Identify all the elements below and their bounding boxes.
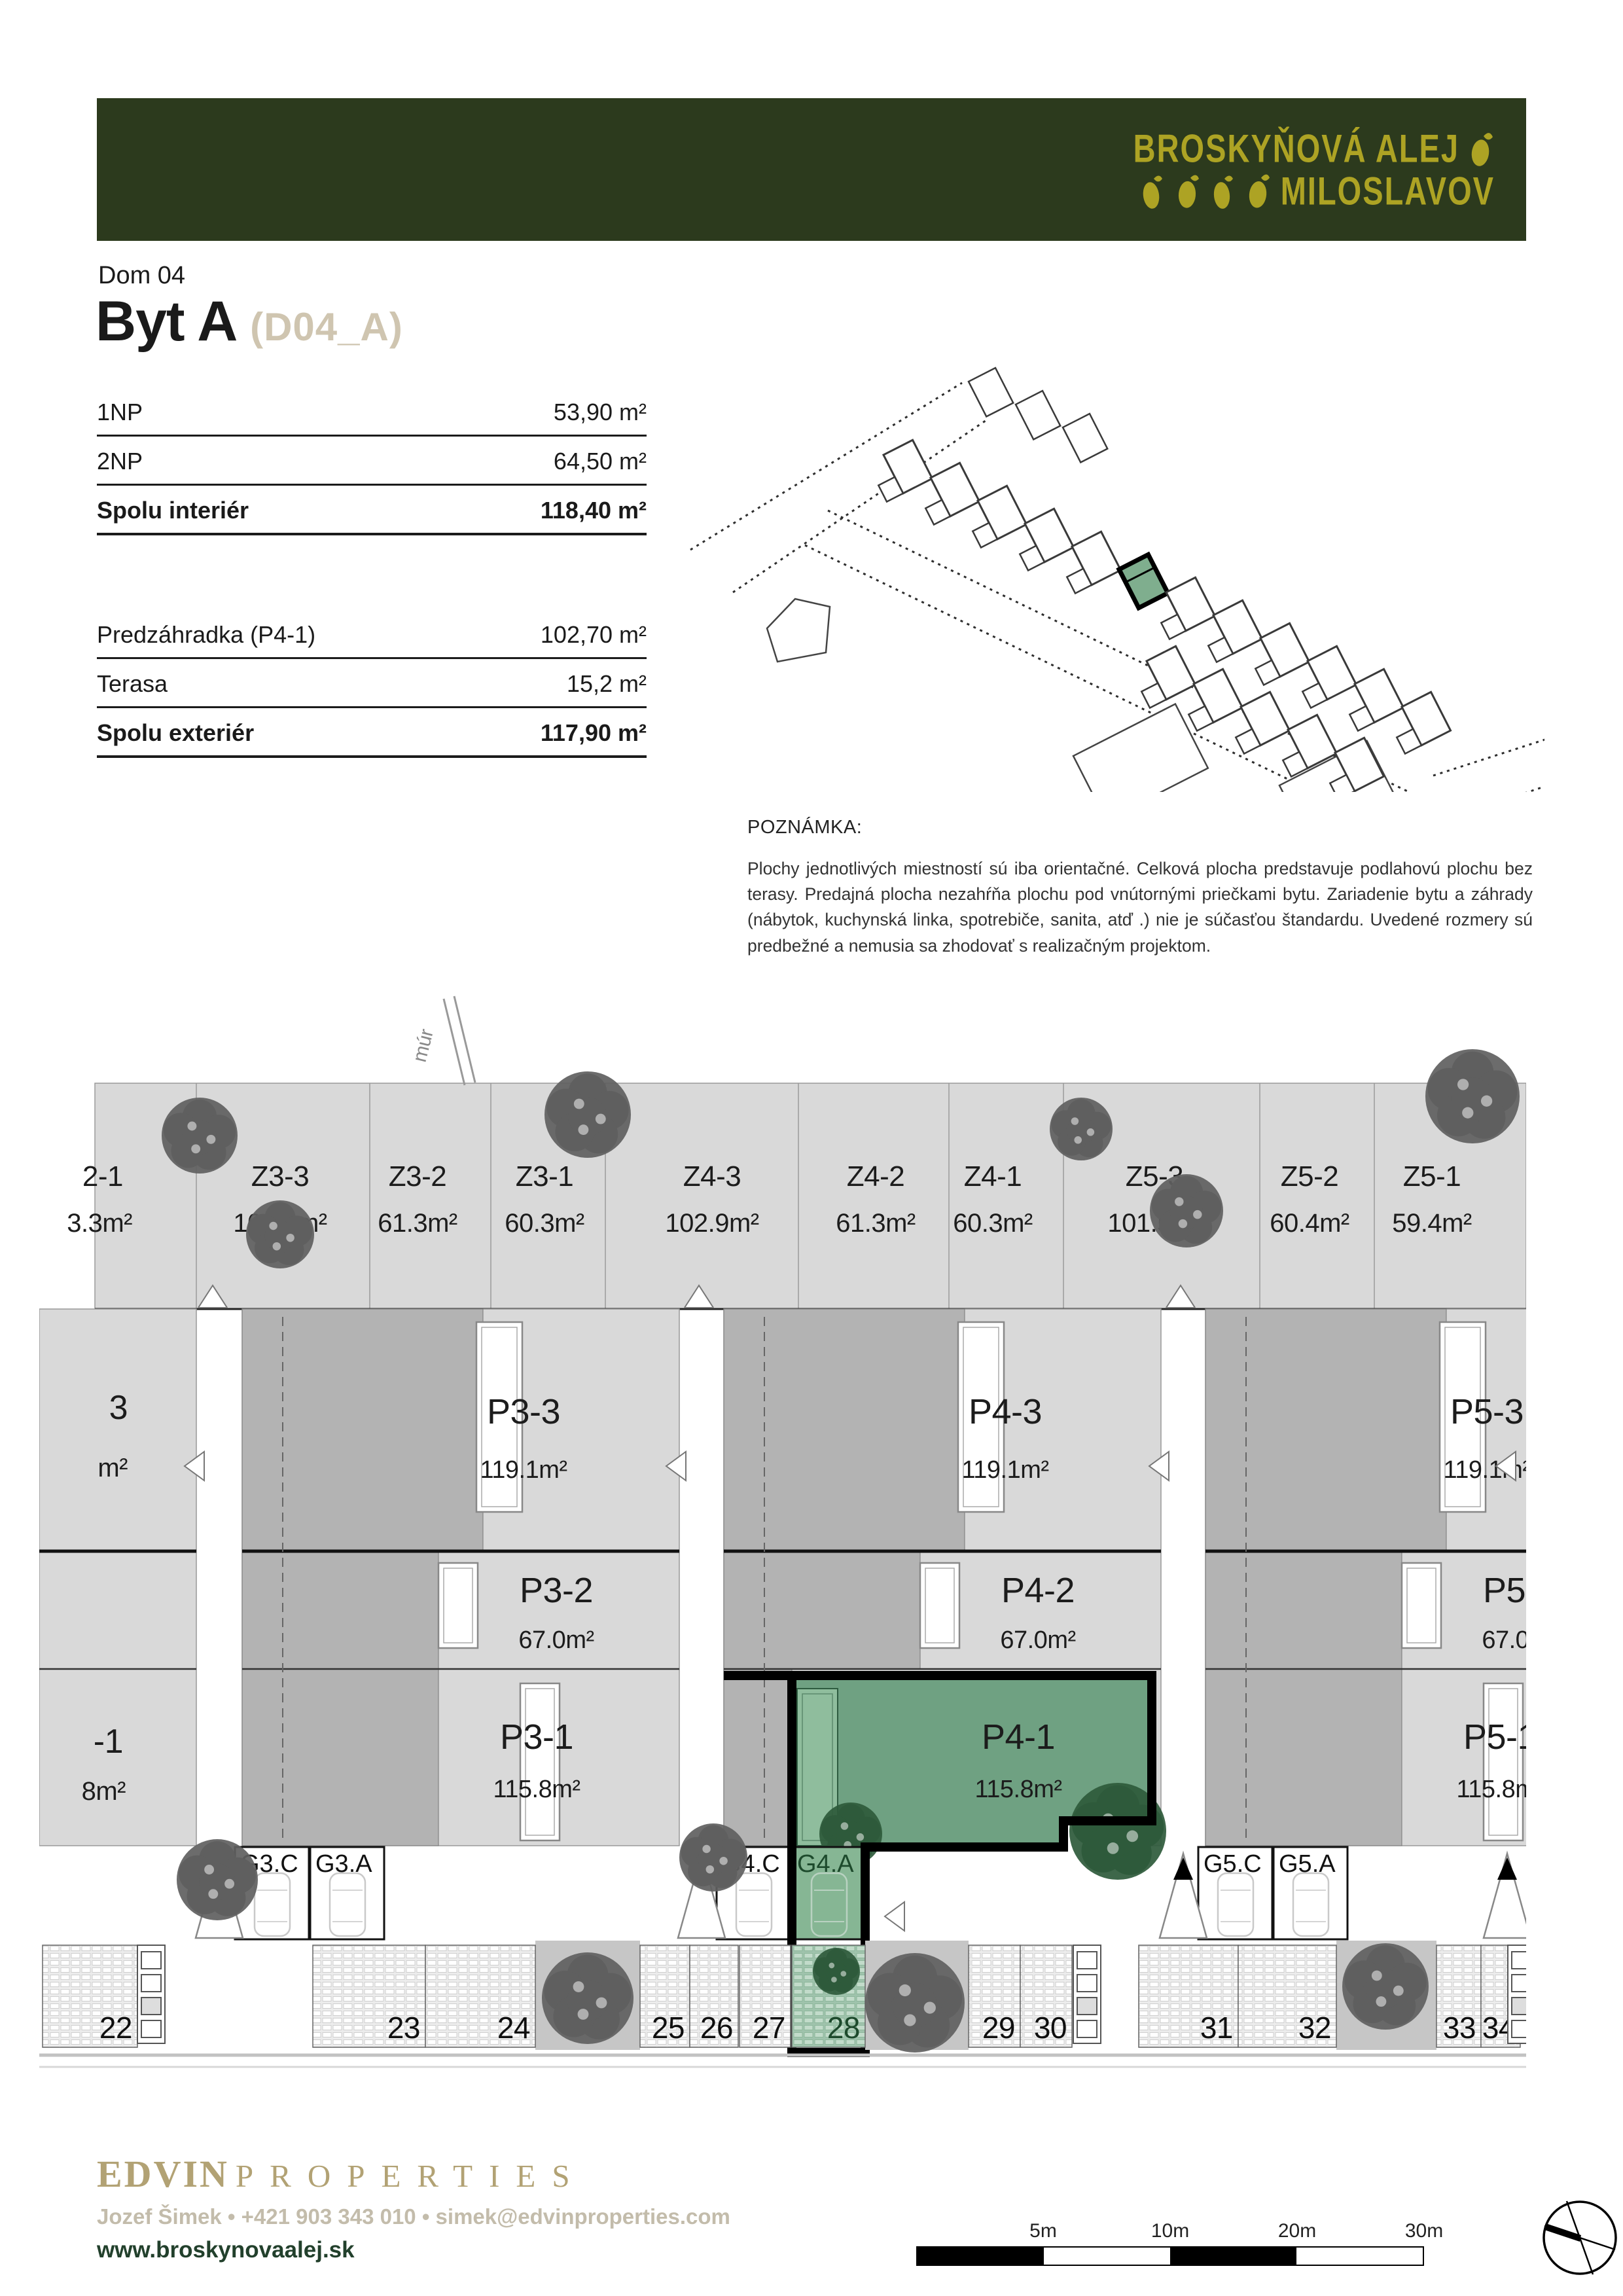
logo-line-2: MILOSLAVOV — [1139, 168, 1495, 213]
plot-area: 119.1m² — [961, 1456, 1048, 1484]
wall-label: múr — [409, 1027, 438, 1064]
garden-label: Z5-2 — [1281, 1160, 1338, 1193]
table-row: 2NP64,50 m² — [97, 437, 647, 486]
plot-label: P4-2 — [1001, 1571, 1075, 1610]
garden-label: Z3-3 — [251, 1160, 309, 1193]
plot-area-fragment: 8m² — [82, 1777, 126, 1806]
parking-number: 29 — [982, 2011, 1015, 2045]
table-row: Terasa15,2 m² — [97, 659, 647, 708]
table-row: Predzáhradka (P4-1)102,70 m² — [97, 610, 647, 659]
garden-area: 59.4m² — [1392, 1209, 1472, 1238]
row-label: Spolu exteriér — [97, 719, 254, 747]
table-row: Spolu exteriér117,90 m² — [97, 708, 647, 758]
agent-contact: Jozef Šimek • +421 903 343 010 • simek@e… — [97, 2204, 730, 2229]
scale-segments — [916, 2246, 1424, 2266]
row-label: Predzáhradka (P4-1) — [97, 621, 315, 649]
parking-number: 25 — [652, 2011, 685, 2045]
house-number-label: Dom 04 — [98, 262, 185, 290]
parking-number: 32 — [1298, 2011, 1331, 2045]
garden-area: 102.9m² — [665, 1209, 758, 1238]
interior-area-table: 1NP53,90 m²2NP64,50 m²Spolu interiér118,… — [97, 387, 647, 535]
row-value: 117,90 m² — [541, 719, 647, 747]
garage-label: G5.C — [1204, 1850, 1262, 1878]
peach-icon — [1139, 171, 1166, 210]
agency-logo: EDVINPROPERTIES — [97, 2152, 586, 2196]
site-locator-diagram — [681, 357, 1544, 792]
tree-icon — [246, 1200, 314, 1268]
plot-area: 115.8m² — [493, 1776, 580, 1803]
tree-icon — [542, 1952, 633, 2044]
row-label: 2NP — [97, 448, 143, 475]
row-label: 1NP — [97, 399, 143, 426]
plot-area: 115.8m² — [1456, 1776, 1526, 1803]
project-town: MILOSLAVOV — [1281, 168, 1495, 213]
highlighted-house — [1119, 554, 1168, 608]
plot-label: P3-2 — [520, 1571, 593, 1610]
peach-icon — [1210, 171, 1236, 210]
plot-label: P5-3 — [1450, 1392, 1524, 1431]
row-value: 64,50 m² — [554, 448, 647, 475]
plot-area: 67.0m² — [1482, 1626, 1526, 1654]
row-label: Terasa — [97, 670, 168, 698]
tree-icon — [177, 1839, 258, 1920]
site-plan: múr3m²-18m²P3-3119.1m²P3-267.0m²P3-1115.… — [39, 995, 1526, 2081]
parking-number: 26 — [700, 2011, 733, 2045]
garden-area: 61.3m² — [836, 1209, 916, 1238]
tree-icon — [1150, 1174, 1223, 1247]
garden-label: Z4-3 — [683, 1160, 741, 1193]
parking-number: 23 — [387, 2011, 420, 2045]
plot-area: 67.0m² — [1000, 1626, 1075, 1654]
unit-sheet-page: BROSKYŇOVÁ ALEJ MILOSLAVOV Dom 04 Byt A … — [0, 0, 1623, 2296]
note-heading: POZNÁMKA: — [747, 817, 862, 838]
garden-area: 3.3m² — [67, 1209, 132, 1238]
garden-label: Z5-1 — [1403, 1160, 1461, 1193]
garden-label: Z4-2 — [847, 1160, 904, 1193]
scale-bar: 5m10m20m30m — [916, 2220, 1424, 2266]
parking-number: 27 — [753, 2011, 785, 2045]
row-value: 118,40 m² — [541, 497, 647, 524]
tree-icon — [544, 1071, 631, 1158]
garden-area: 60.3m² — [953, 1209, 1033, 1238]
plot-label-fragment: -1 — [94, 1723, 123, 1761]
row-value: 102,70 m² — [541, 621, 647, 649]
plot-label: P4-3 — [969, 1392, 1042, 1431]
garage-label: G5.A — [1279, 1850, 1336, 1878]
scale-tick-label: 10m — [1151, 2220, 1189, 2242]
tree-icon — [813, 1948, 860, 1995]
scale-labels: 5m10m20m30m — [916, 2220, 1424, 2246]
plot-area: 115.8m² — [974, 1776, 1061, 1803]
tree-icon — [1425, 1049, 1520, 1143]
garden-area: 60.3m² — [505, 1209, 584, 1238]
plot-label: P5-2 — [1483, 1571, 1526, 1610]
plot-area: 67.0m² — [518, 1626, 594, 1654]
header-banner: BROSKYŇOVÁ ALEJ MILOSLAVOV — [97, 98, 1526, 241]
project-website: www.broskynovaalej.sk — [97, 2237, 355, 2263]
garage-label: G4.A — [797, 1850, 854, 1878]
tree-icon — [865, 1953, 965, 2053]
row-value: 15,2 m² — [567, 670, 647, 698]
garden-label: Z3-1 — [516, 1160, 573, 1193]
tree-icon — [679, 1823, 747, 1892]
parking-number: 28 — [827, 2011, 860, 2045]
row-label: Spolu interiér — [97, 497, 249, 524]
agency-name-primary: EDVIN — [97, 2153, 229, 2195]
compass-icon — [1530, 2189, 1623, 2287]
parking-number: 33 — [1443, 2011, 1476, 2045]
parking-number: 30 — [1034, 2011, 1067, 2045]
logo-line-1: BROSKYŇOVÁ ALEJ — [1133, 125, 1495, 171]
peach-icon — [1175, 171, 1201, 210]
plot-area: 119.1m² — [480, 1456, 567, 1484]
plot-label: P5-1 — [1463, 1717, 1526, 1757]
parking-number: 22 — [99, 2011, 132, 2045]
row-value: 53,90 m² — [554, 399, 647, 426]
garden-label: 2-1 — [82, 1160, 123, 1193]
plot-area-fragment: m² — [98, 1454, 128, 1482]
scale-tick-label: 5m — [1029, 2220, 1057, 2242]
scale-tick-label: 20m — [1278, 2220, 1316, 2242]
tree-icon — [162, 1098, 238, 1174]
peach-icon — [1469, 129, 1495, 168]
plot-label: P3-1 — [500, 1717, 573, 1757]
unit-code: (D04_A) — [250, 305, 403, 349]
plot-label: P4-1 — [982, 1717, 1055, 1757]
garden-area: 60.4m² — [1270, 1209, 1349, 1238]
garage-label: G3.A — [315, 1850, 372, 1878]
parking-number: 24 — [497, 2011, 530, 2045]
peach-icon — [1245, 171, 1272, 210]
unit-name: Byt A — [96, 290, 235, 353]
project-name: BROSKYŇOVÁ ALEJ — [1133, 125, 1459, 171]
parking-number: 31 — [1200, 2011, 1233, 2045]
scale-tick-label: 30m — [1405, 2220, 1443, 2242]
plot-label: P3-3 — [487, 1392, 560, 1431]
tree-icon — [1050, 1098, 1113, 1160]
agency-name-secondary: PROPERTIES — [236, 2158, 586, 2194]
table-row: 1NP53,90 m² — [97, 387, 647, 437]
table-row: Spolu interiér118,40 m² — [97, 486, 647, 535]
page-title: Byt A (D04_A) — [96, 289, 403, 354]
garden-label: Z4-1 — [964, 1160, 1022, 1193]
tree-icon — [1342, 1943, 1429, 2030]
exterior-area-table: Predzáhradka (P4-1)102,70 m²Terasa15,2 m… — [97, 610, 647, 758]
note-body: Plochy jednotlivých miestností sú iba or… — [747, 856, 1533, 959]
garden-label: Z3-2 — [389, 1160, 446, 1193]
plot-label-fragment: 3 — [109, 1389, 128, 1427]
garden-area: 61.3m² — [378, 1209, 457, 1238]
